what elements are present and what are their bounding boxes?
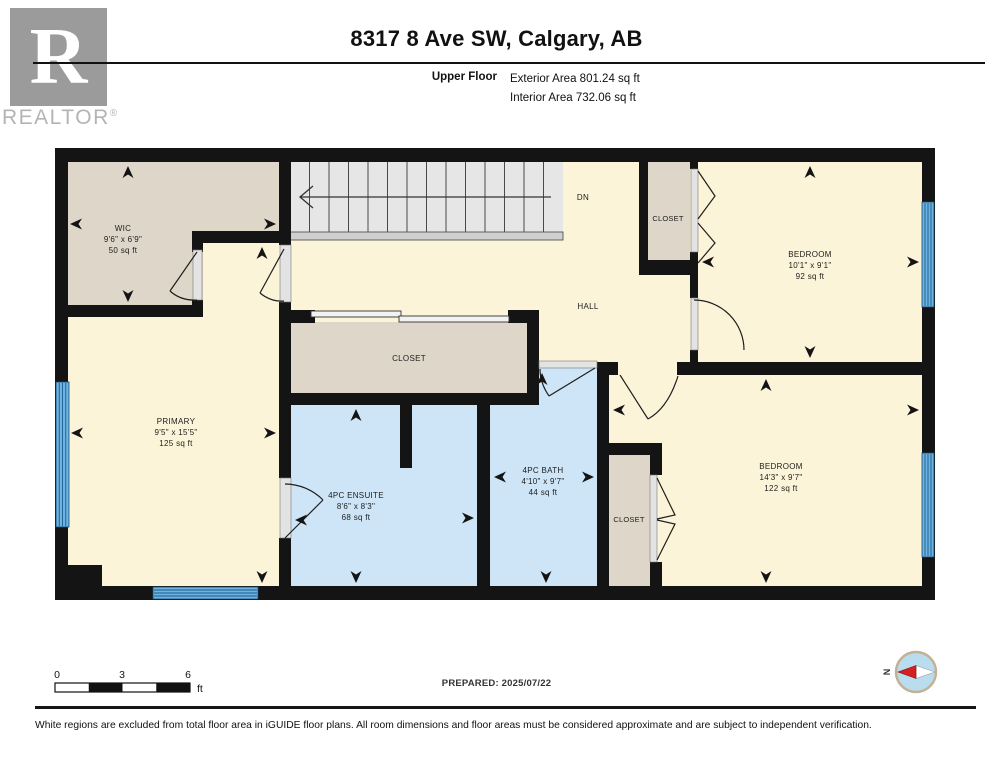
label-ensuite-dims: 8'6" x 8'3" bbox=[337, 502, 375, 511]
label-bedroom-tr-name: BEDROOM bbox=[788, 250, 831, 259]
wall-closet-br-top bbox=[597, 443, 662, 455]
label-bath-area: 44 sq ft bbox=[529, 488, 558, 497]
label-bedroom-br-dims: 14'3" x 9'7" bbox=[759, 473, 802, 482]
wall-divider-right bbox=[677, 362, 923, 375]
bifold-track-closet-tr bbox=[691, 169, 698, 252]
wall-bath-right bbox=[597, 362, 609, 586]
wall-outer-left bbox=[55, 148, 68, 600]
door-opening-wic bbox=[193, 250, 202, 300]
label-ensuite-name: 4PC ENSUITE bbox=[328, 491, 384, 500]
label-wic-area: 50 sq ft bbox=[109, 246, 138, 255]
label-primary-area: 125 sq ft bbox=[159, 439, 193, 448]
label-stairs-dn: DN bbox=[577, 193, 589, 202]
label-bath-dims: 4'10" x 9'7" bbox=[521, 477, 564, 486]
label-bath-name: 4PC BATH bbox=[523, 466, 564, 475]
wall-center-vertical-b bbox=[279, 302, 291, 478]
label-bedroom-br-area: 122 sq ft bbox=[764, 484, 798, 493]
wall-closet-br-stub-bottom bbox=[650, 562, 662, 586]
label-hall: HALL bbox=[577, 302, 598, 311]
wall-outer-top bbox=[55, 148, 935, 162]
wall-closet-tr-bottom bbox=[639, 260, 698, 275]
label-wic-dims: 9'6" x 6'9" bbox=[104, 235, 142, 244]
wall-closet-tr-left bbox=[639, 148, 648, 260]
stairs bbox=[290, 162, 563, 240]
wall-ensuite-stub bbox=[400, 405, 412, 468]
wall-wic-jog bbox=[192, 231, 291, 243]
label-ensuite-area: 68 sq ft bbox=[342, 513, 371, 522]
label-bedroom-br-name: BEDROOM bbox=[759, 462, 802, 471]
sliding-door-panel-left bbox=[311, 311, 401, 317]
label-bedroom-tr-dims: 10'1" x 9'1" bbox=[788, 261, 831, 270]
disclaimer-text: White regions are excluded from total fl… bbox=[35, 720, 980, 731]
label-closet-middle: CLOSET bbox=[392, 354, 426, 363]
stair-rail bbox=[290, 232, 563, 240]
window bbox=[153, 587, 258, 599]
wall-bedroom-tr-left-a bbox=[690, 252, 698, 298]
window bbox=[922, 453, 934, 557]
wall-wic-bottom bbox=[55, 305, 203, 317]
wall-closet-mid-bottom bbox=[279, 393, 539, 405]
wall-center-vertical-c bbox=[279, 538, 291, 586]
label-wic-name: WIC bbox=[115, 224, 131, 233]
compass-n-label: N bbox=[882, 669, 892, 676]
wall-closet-br-stub-top bbox=[650, 455, 662, 475]
wall-ensuite-bath bbox=[477, 405, 490, 586]
footer-divider-line bbox=[35, 706, 976, 709]
door-opening-bedroom-tr bbox=[691, 298, 698, 350]
prepared-date: PREPARED: 2025/07/22 bbox=[0, 678, 993, 689]
wall-closet-tr-stub-top bbox=[690, 162, 698, 169]
label-closet-bottom-right: CLOSET bbox=[613, 515, 644, 524]
door-opening-ensuite bbox=[280, 478, 291, 538]
label-primary-dims: 9'5" x 15'5" bbox=[154, 428, 197, 437]
sliding-door-panel-right bbox=[399, 316, 509, 322]
window bbox=[922, 202, 934, 307]
wall-corner-bottom-left bbox=[55, 565, 102, 600]
room-closet-top-right bbox=[648, 162, 690, 260]
window bbox=[56, 382, 69, 527]
floor-plan: WIC 9'6" x 6'9" 50 sq ft PRIMARY 9'5" x … bbox=[0, 0, 993, 768]
label-closet-top-right: CLOSET bbox=[652, 214, 683, 223]
label-primary-name: PRIMARY bbox=[157, 417, 196, 426]
wall-divider-left bbox=[597, 362, 618, 375]
bifold-track-closet-br bbox=[650, 475, 657, 562]
label-bedroom-tr-area: 92 sq ft bbox=[796, 272, 825, 281]
door-opening-bath bbox=[539, 361, 597, 368]
wall-closet-mid-right bbox=[527, 310, 539, 405]
wall-center-vertical-a bbox=[279, 148, 291, 245]
